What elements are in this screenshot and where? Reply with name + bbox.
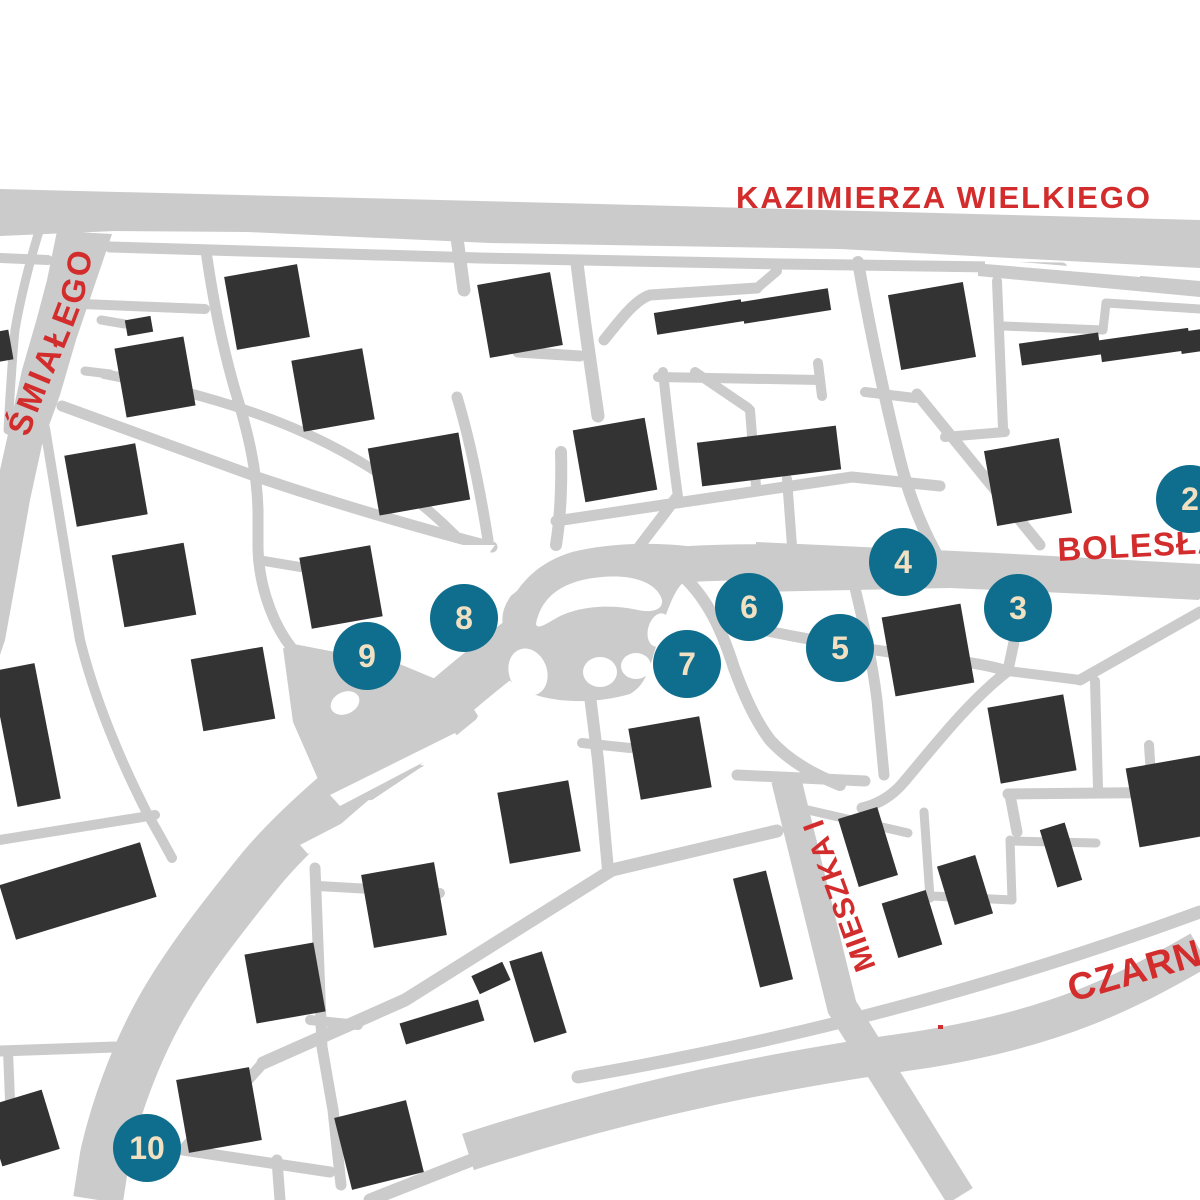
svg-text:KAZIMIERZA WIELKIEGO: KAZIMIERZA WIELKIEGO bbox=[736, 180, 1152, 215]
svg-text:5: 5 bbox=[831, 630, 849, 666]
svg-text:8: 8 bbox=[455, 600, 473, 636]
svg-text:6: 6 bbox=[740, 589, 758, 625]
svg-text:9: 9 bbox=[358, 638, 376, 674]
svg-text:3: 3 bbox=[1009, 590, 1027, 626]
svg-text:10: 10 bbox=[129, 1130, 165, 1166]
svg-text:4: 4 bbox=[894, 544, 912, 580]
svg-text:7: 7 bbox=[678, 646, 696, 682]
svg-text:2: 2 bbox=[1181, 481, 1199, 517]
